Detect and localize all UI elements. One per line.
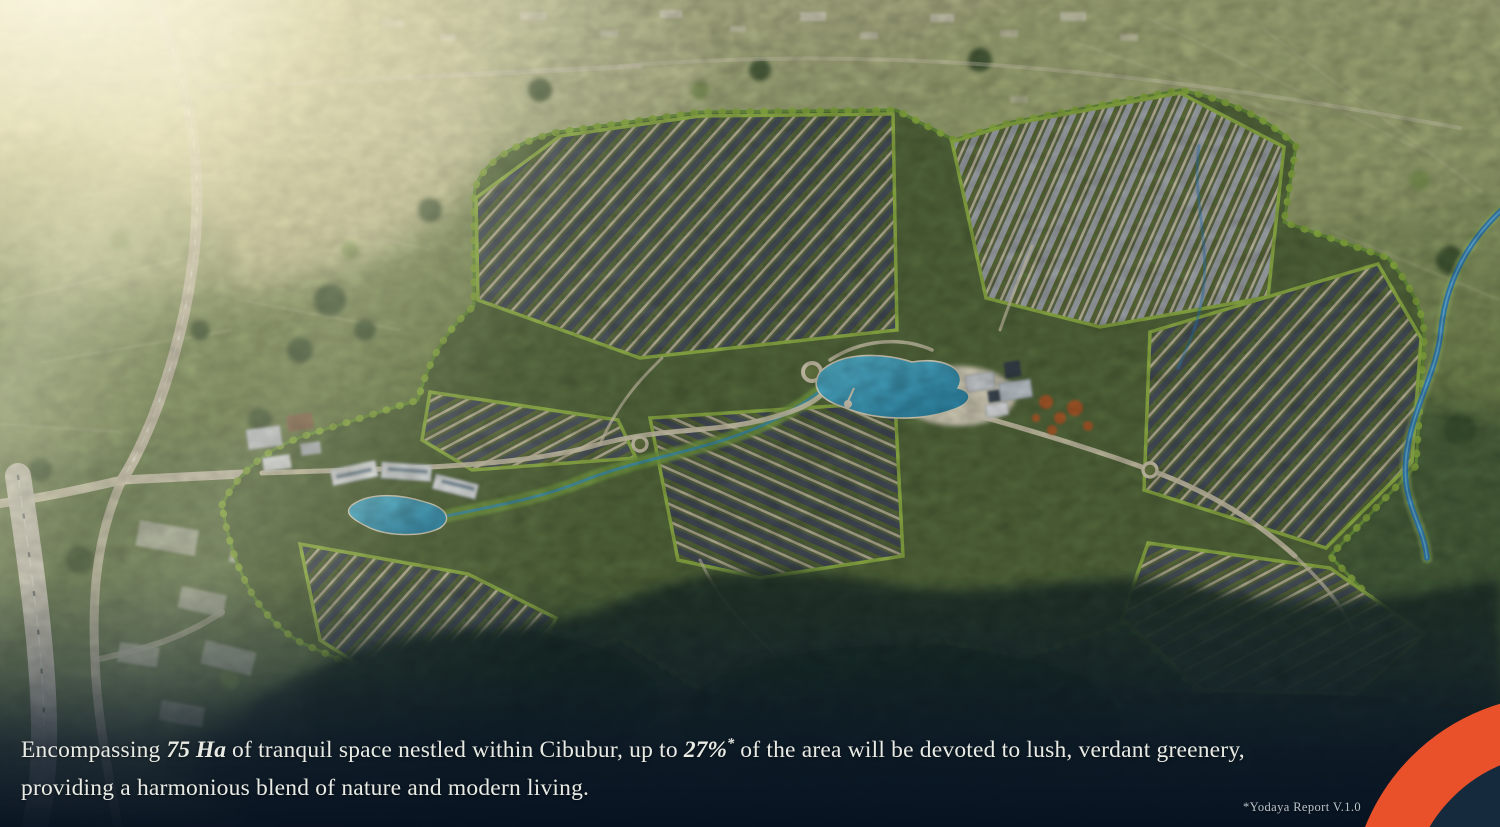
- caption-text: of the area will be devoted to lush, ver…: [734, 737, 1245, 763]
- caption-line-2: providing a harmonious blend of nature a…: [21, 769, 1451, 807]
- masterplan-slide: Encompassing 75 Ha of tranquil space nes…: [0, 0, 1500, 827]
- caption-line-1: Encompassing 75 Ha of tranquil space nes…: [21, 731, 1451, 769]
- aerial-masterplan-render: [0, 0, 1500, 827]
- texture-grain: [0, 0, 1500, 827]
- caption-text: of tranquil space nestled within Cibubur…: [226, 737, 684, 763]
- caption-text: Encompassing: [21, 737, 167, 763]
- footnote-source: *Yodaya Report V.1.0: [1243, 800, 1361, 815]
- stat-area: 75 Ha: [167, 737, 226, 763]
- stat-greenery-percent: 27%: [684, 737, 727, 763]
- caption: Encompassing 75 Ha of tranquil space nes…: [21, 731, 1451, 807]
